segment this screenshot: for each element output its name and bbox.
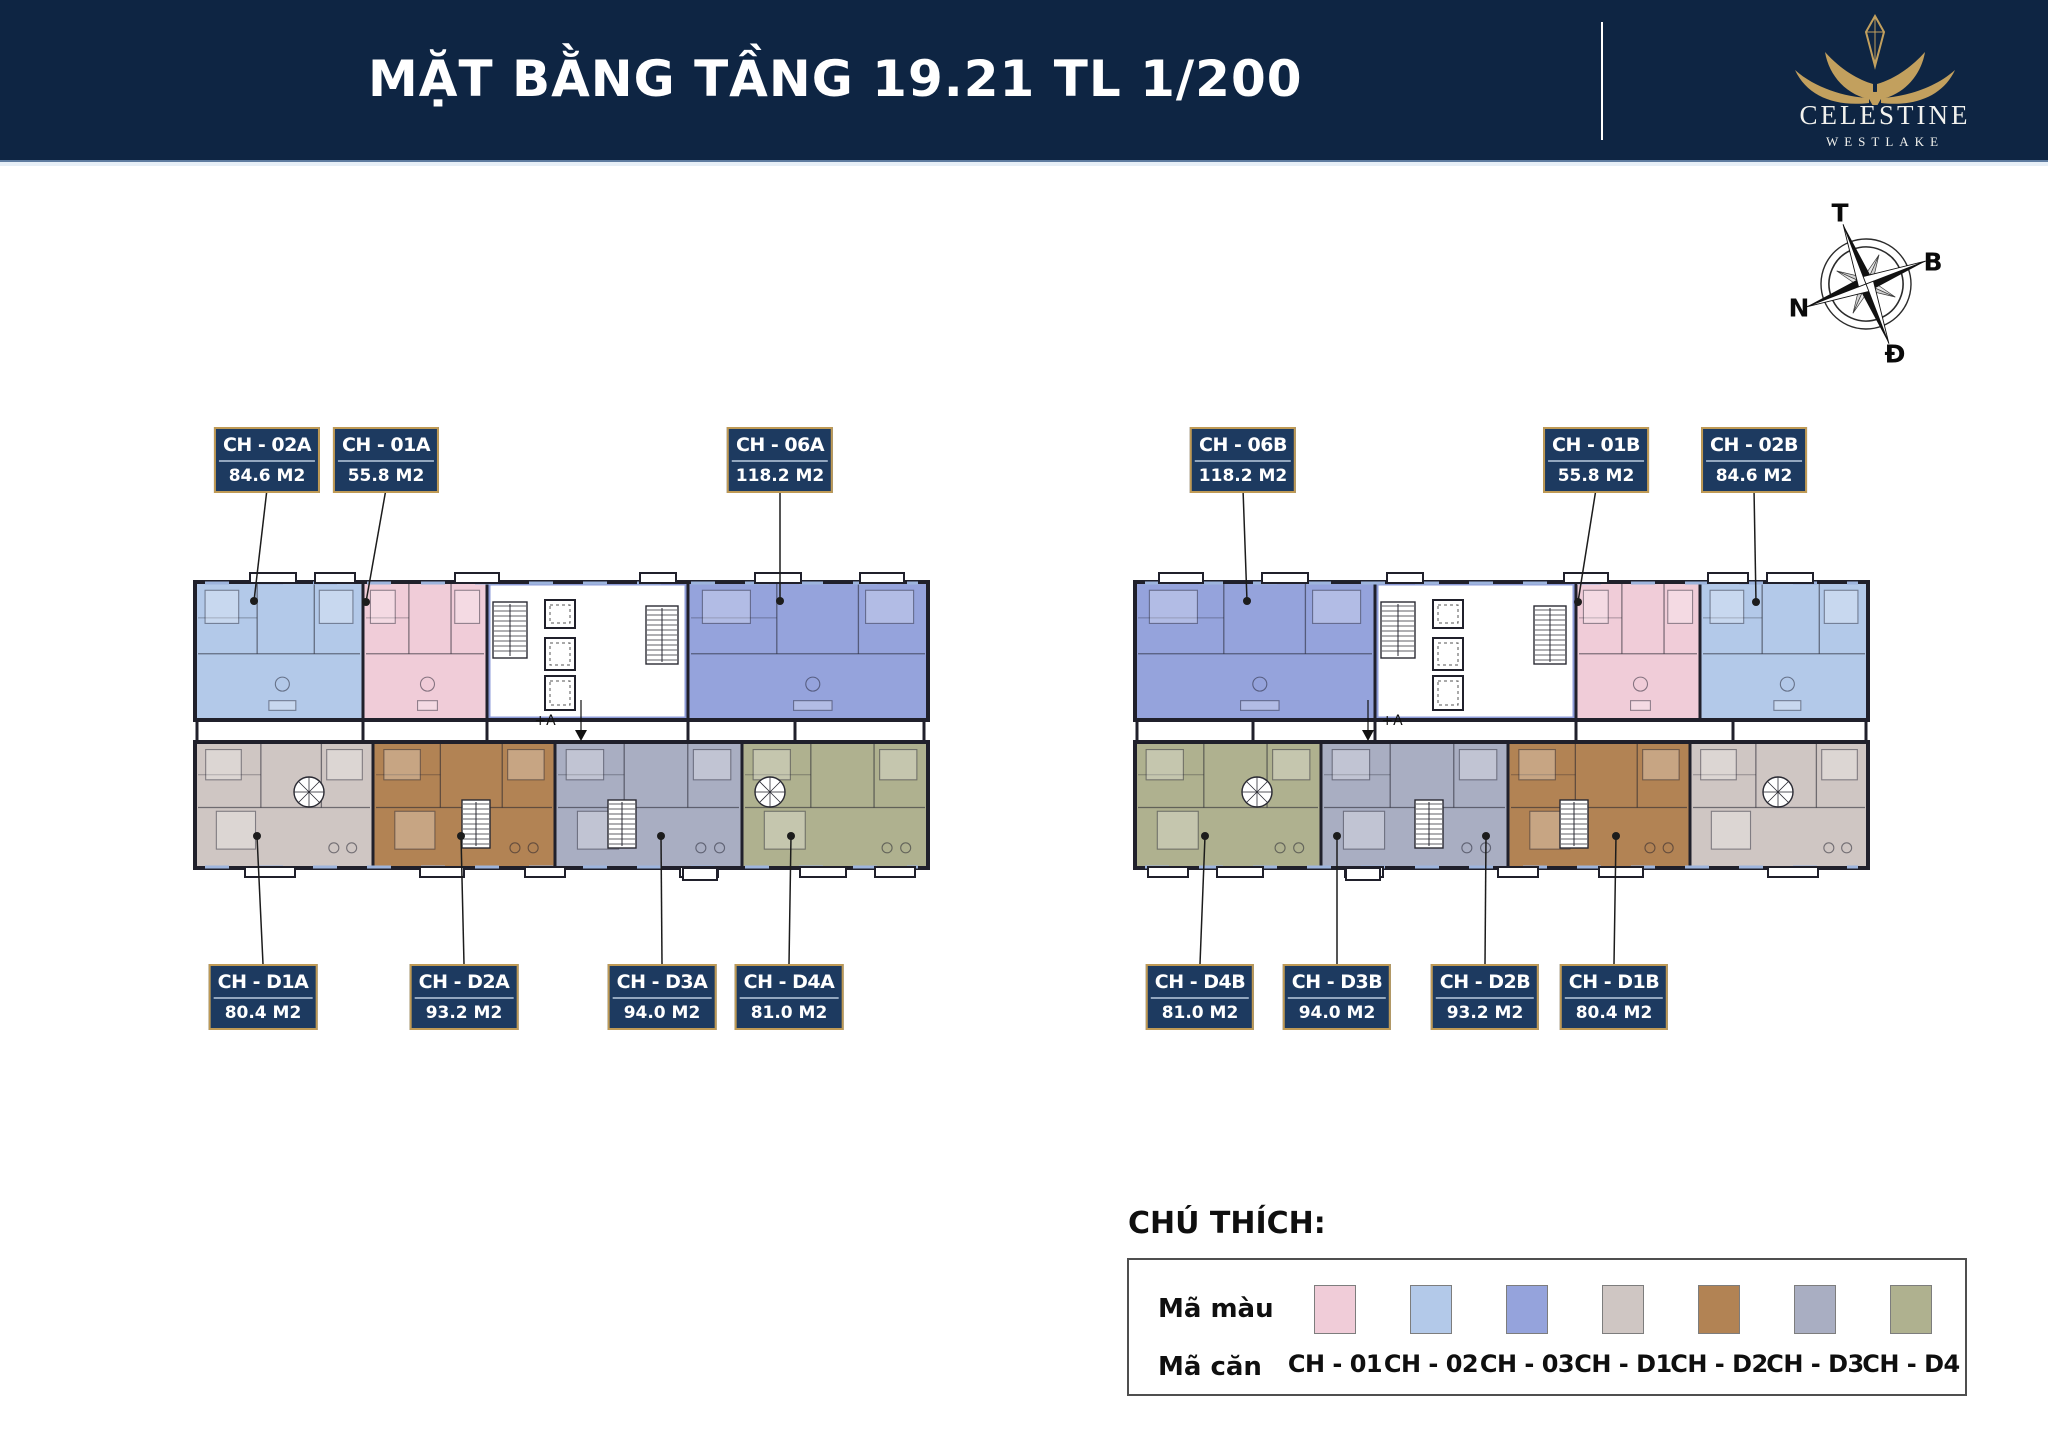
unit-code: CH - 02A [216,429,318,460]
unit-label: CH - 06A118.2 M2 [727,427,833,493]
unit-label: CH - D2B93.2 M2 [1431,964,1539,1030]
unit-area: 55.8 M2 [335,462,437,491]
unit-area: 81.0 M2 [737,999,842,1028]
unit-label: CH - 02B84.6 M2 [1701,427,1807,493]
svg-text:+A: +A [534,713,556,729]
legend-color-swatch [1890,1285,1932,1334]
unit-label: CH - D1B80.4 M2 [1560,964,1668,1030]
svg-text:+A: +A [1381,713,1403,729]
unit-label: CH - D3B94.0 M2 [1283,964,1391,1030]
unit-label: CH - 01A55.8 M2 [333,427,439,493]
unit-area: 80.4 M2 [1562,999,1666,1028]
legend-color-swatch [1410,1285,1452,1334]
unit-code: CH - D4A [737,966,842,997]
unit-code: CH - D3B [1285,966,1389,997]
legend-color-swatch [1314,1285,1356,1334]
unit-code: CH - 01B [1545,429,1647,460]
legend-color-swatch [1794,1285,1836,1334]
unit-label: CH - 02A84.6 M2 [214,427,320,493]
unit-label: CH - D2A93.2 M2 [410,964,519,1030]
unit-area: 84.6 M2 [1703,462,1805,491]
legend-unit-code: CH - 02 [1384,1350,1478,1378]
unit-code: CH - 01A [335,429,437,460]
legend-color-swatch [1602,1285,1644,1334]
unit-area: 94.0 M2 [610,999,715,1028]
unit-label: CH - D3A94.0 M2 [608,964,717,1030]
unit-area: 93.2 M2 [412,999,517,1028]
unit-code: CH - 06A [729,429,831,460]
unit-label: CH - 06B118.2 M2 [1190,427,1296,493]
unit-code: CH - D1B [1562,966,1666,997]
unit-code: CH - 02B [1703,429,1805,460]
unit-label: CH - D4B81.0 M2 [1146,964,1254,1030]
unit-label: CH - D4A81.0 M2 [735,964,844,1030]
legend-unit-code: CH - D4 [1862,1350,1960,1378]
unit-label: CH - 01B55.8 M2 [1543,427,1649,493]
floor-plan-page: MẶT BẰNG TẦNG 19.21 TL 1/200 CELESTINE W… [0,0,2048,1449]
legend-unit-code: CH - D1 [1574,1350,1672,1378]
legend-unit-row-label: Mã căn [1158,1352,1262,1382]
legend-unit-code: CH - D2 [1670,1350,1768,1378]
unit-area: 94.0 M2 [1285,999,1389,1028]
unit-area: 81.0 M2 [1148,999,1252,1028]
unit-label: CH - D1A80.4 M2 [209,964,318,1030]
legend-color-swatch [1506,1285,1548,1334]
unit-area: 80.4 M2 [211,999,316,1028]
unit-area: 118.2 M2 [1192,462,1294,491]
legend-color-row-label: Mã màu [1158,1294,1274,1324]
unit-area: 93.2 M2 [1433,999,1537,1028]
legend-color-swatch [1698,1285,1740,1334]
legend-unit-code: CH - 01 [1288,1350,1382,1378]
unit-code: CH - D2B [1433,966,1537,997]
unit-area: 84.6 M2 [216,462,318,491]
legend-unit-code: CH - 03 [1480,1350,1574,1378]
unit-area: 55.8 M2 [1545,462,1647,491]
legend-unit-code: CH - D3 [1766,1350,1864,1378]
unit-code: CH - D2A [412,966,517,997]
legend-title: CHÚ THÍCH: [1128,1206,1326,1241]
unit-code: CH - D3A [610,966,715,997]
unit-area: 118.2 M2 [729,462,831,491]
unit-code: CH - D4B [1148,966,1252,997]
unit-code: CH - D1A [211,966,316,997]
floor-plan-drawing: +A+A [0,0,2048,1449]
unit-code: CH - 06B [1192,429,1294,460]
